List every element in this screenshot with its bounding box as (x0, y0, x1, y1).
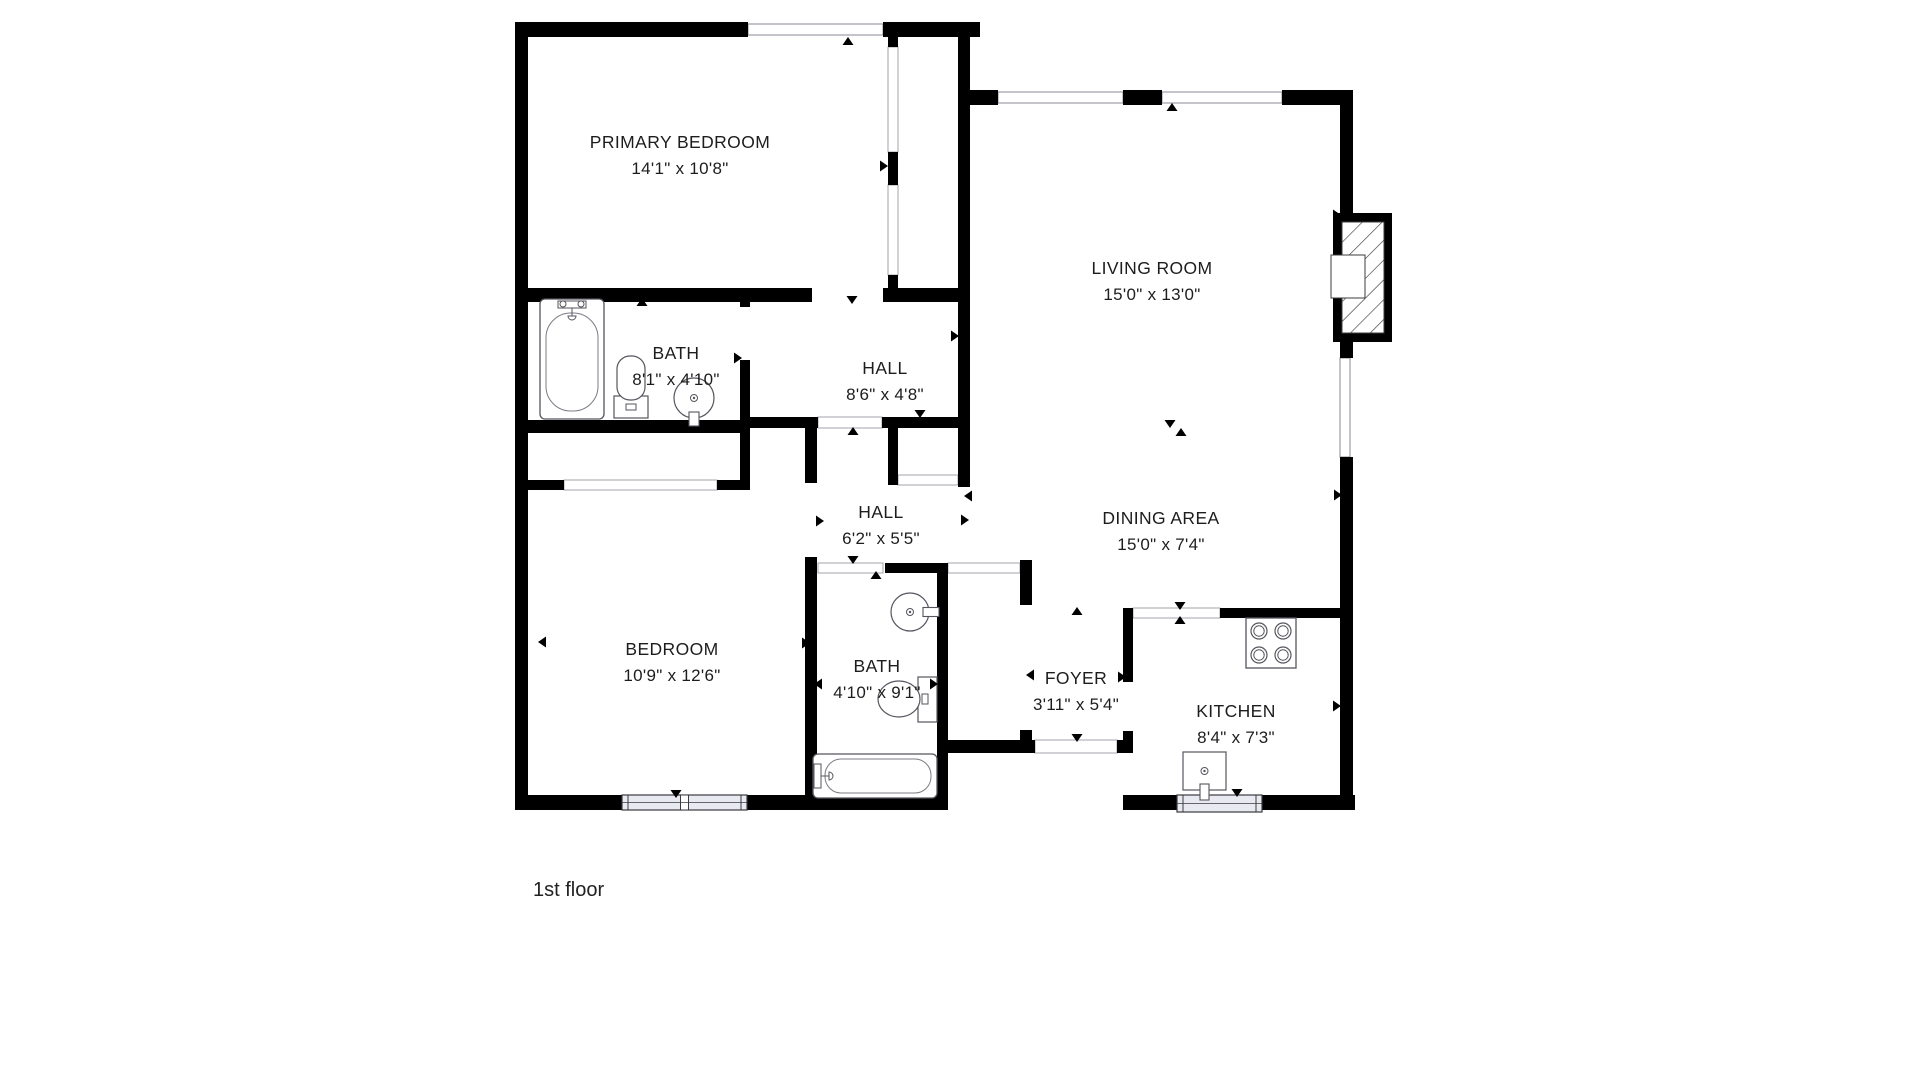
door-gap (812, 288, 883, 302)
floor-plan-svg: PRIMARY BEDROOM14'1" x 10'8"LIVING ROOM1… (0, 0, 1920, 1080)
room-name: BATH (653, 343, 700, 363)
door-gap (740, 307, 750, 360)
wall-segment (1340, 105, 1353, 213)
cased-opening (1035, 740, 1117, 753)
arrow-marker (1165, 420, 1176, 428)
room-name: BATH (854, 656, 901, 676)
room-label-living-room: LIVING ROOM15'0" x 13'0" (1091, 258, 1212, 304)
window-opening (748, 24, 883, 35)
room-dimensions: 15'0" x 7'4" (1117, 535, 1204, 554)
room-label-primary-bedroom: PRIMARY BEDROOM14'1" x 10'8" (590, 132, 770, 178)
wall-segment (515, 480, 564, 490)
bathtub-fixture (813, 754, 937, 798)
door-gap (1020, 605, 1032, 730)
cased-opening (888, 47, 898, 152)
cased-opening (948, 563, 1020, 573)
fireplace (1331, 213, 1392, 342)
wall-segment (888, 417, 898, 475)
arrow-marker (1333, 701, 1341, 712)
room-name: PRIMARY BEDROOM (590, 132, 770, 152)
room-name: KITCHEN (1196, 701, 1276, 721)
room-dimensions: 15'0" x 13'0" (1103, 285, 1200, 304)
room-label-foyer: FOYER3'11" x 5'4" (1033, 668, 1119, 714)
room-name: LIVING ROOM (1091, 258, 1212, 278)
wall-segment (888, 152, 898, 185)
room-labels: PRIMARY BEDROOM14'1" x 10'8"LIVING ROOM1… (590, 132, 1276, 747)
wall-segment (888, 275, 898, 302)
cased-opening (564, 480, 717, 490)
bathtub-fixture (540, 299, 604, 419)
room-name: FOYER (1045, 668, 1107, 688)
window (1177, 795, 1262, 812)
wall-segment (1020, 730, 1032, 753)
room-dimensions: 10'9" x 12'6" (623, 666, 720, 685)
room-dimensions: 6'2" x 5'5" (842, 529, 920, 548)
window-opening (998, 92, 1123, 103)
arrow-marker (538, 637, 546, 648)
wall-segment (1340, 457, 1353, 810)
floor-plan-page: PRIMARY BEDROOM14'1" x 10'8"LIVING ROOM1… (0, 0, 1920, 1080)
stove-fixture (1246, 618, 1296, 668)
wall-segment (1123, 731, 1133, 753)
arrow-marker (915, 410, 926, 418)
wall-segment (717, 480, 750, 490)
room-dimensions: 8'6" x 4'8" (846, 385, 924, 404)
arrow-marker (1167, 103, 1178, 111)
window-opening (1162, 92, 1282, 103)
wall-segment (515, 22, 528, 810)
arrow-marker (843, 37, 854, 45)
wall-segment (740, 420, 750, 490)
cased-opening (888, 185, 898, 275)
room-name: HALL (858, 502, 903, 522)
room-name: BEDROOM (625, 639, 718, 659)
window-opening (1340, 358, 1350, 457)
floor-label: 1st floor (533, 879, 604, 901)
arrow-marker (816, 516, 824, 527)
wall-segment (805, 417, 817, 483)
arrow-marker (961, 515, 969, 526)
wall-segment (888, 37, 898, 47)
wall-segment (515, 420, 750, 433)
cased-opening (898, 475, 958, 485)
wall-segment (1020, 560, 1032, 605)
wall-segment (937, 563, 948, 807)
wall-segment (958, 475, 970, 487)
room-name: HALL (862, 358, 907, 378)
room-label-bath-2: BATH4'10" x 9'1" (833, 656, 920, 702)
wall-segment (883, 22, 980, 37)
room-label-bath-1: BATH8'1" x 4'10" (632, 343, 719, 389)
cased-opening (818, 417, 882, 428)
room-dimensions: 8'4" x 7'3" (1197, 728, 1275, 747)
arrow-marker (1176, 428, 1187, 436)
room-dimensions: 8'1" x 4'10" (632, 370, 719, 389)
wall-segment (515, 22, 748, 37)
cased-opening (818, 563, 883, 573)
wall-segment (1220, 608, 1353, 618)
wall-segment (1340, 342, 1353, 358)
room-label-bedroom: BEDROOM10'9" x 12'6" (623, 639, 720, 685)
wall-segment (888, 475, 898, 485)
arrow-marker (951, 331, 959, 342)
wall-segment (958, 37, 970, 487)
sink-round-fixture (891, 593, 939, 631)
room-dimensions: 3'11" x 5'4" (1033, 695, 1119, 714)
room-label-dining-area: DINING AREA15'0" x 7'4" (1102, 508, 1219, 554)
door-gap (1123, 682, 1133, 731)
wall-segment (740, 288, 750, 307)
arrow-marker (1072, 607, 1083, 615)
wall-segment (1123, 608, 1133, 682)
arrow-marker (964, 491, 972, 502)
wall-segment (1123, 90, 1162, 105)
sink-square-fixture (1183, 752, 1226, 800)
room-dimensions: 14'1" x 10'8" (631, 159, 728, 178)
door-gap (805, 483, 817, 557)
wall-segment (970, 90, 998, 105)
cased-opening (1133, 608, 1220, 618)
room-name: DINING AREA (1102, 508, 1219, 528)
wall-segment (885, 563, 937, 573)
window (622, 795, 747, 810)
room-label-hall-2: HALL6'2" x 5'5" (842, 502, 920, 548)
room-label-hall-1: HALL8'6" x 4'8" (846, 358, 924, 404)
wall-segment (1282, 90, 1353, 105)
room-dimensions: 4'10" x 9'1" (833, 683, 920, 702)
arrow-marker (880, 161, 888, 172)
room-label-kitchen: KITCHEN8'4" x 7'3" (1196, 701, 1276, 747)
